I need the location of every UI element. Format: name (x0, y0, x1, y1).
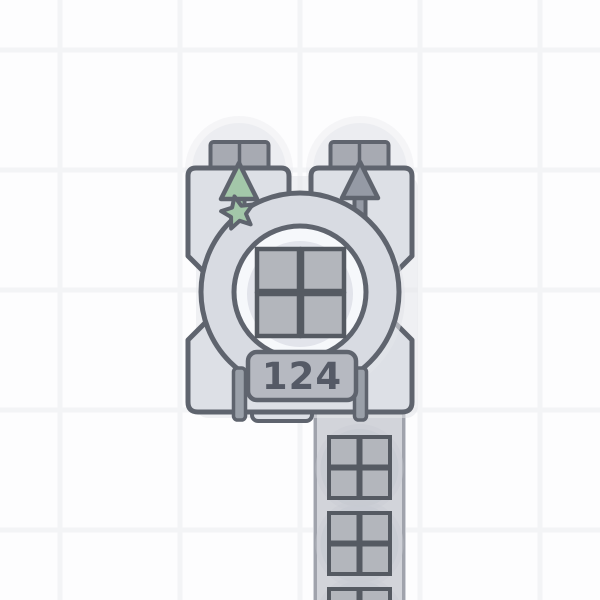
shape-quadrant (361, 589, 391, 600)
shape-quadrant (329, 589, 359, 600)
leg-left (234, 368, 246, 420)
conveyor-belt[interactable] (313, 404, 406, 600)
stored-shape (257, 249, 344, 336)
counter-label: 124 (248, 352, 356, 400)
shape-quadrant (302, 249, 344, 291)
shape-quadrant (361, 545, 391, 575)
shape-quadrant (361, 437, 391, 467)
game-canvas[interactable]: 124 (0, 0, 600, 600)
shape-quadrant (329, 469, 359, 499)
shape-quadrant (302, 294, 344, 336)
shape-quadrant (329, 437, 359, 467)
belt-item-shape (316, 500, 404, 588)
shape-quadrant (329, 513, 359, 543)
game-viewport[interactable]: 124 (0, 0, 600, 600)
shape-quadrant (361, 469, 391, 499)
shape-quadrant (257, 294, 299, 336)
belt-item-shape (316, 424, 404, 512)
counter-value: 124 (262, 355, 342, 398)
shape-quadrant (361, 513, 391, 543)
shape-quadrant (257, 249, 299, 291)
shape-quadrant (329, 545, 359, 575)
hub-building[interactable]: 124 (188, 142, 418, 421)
